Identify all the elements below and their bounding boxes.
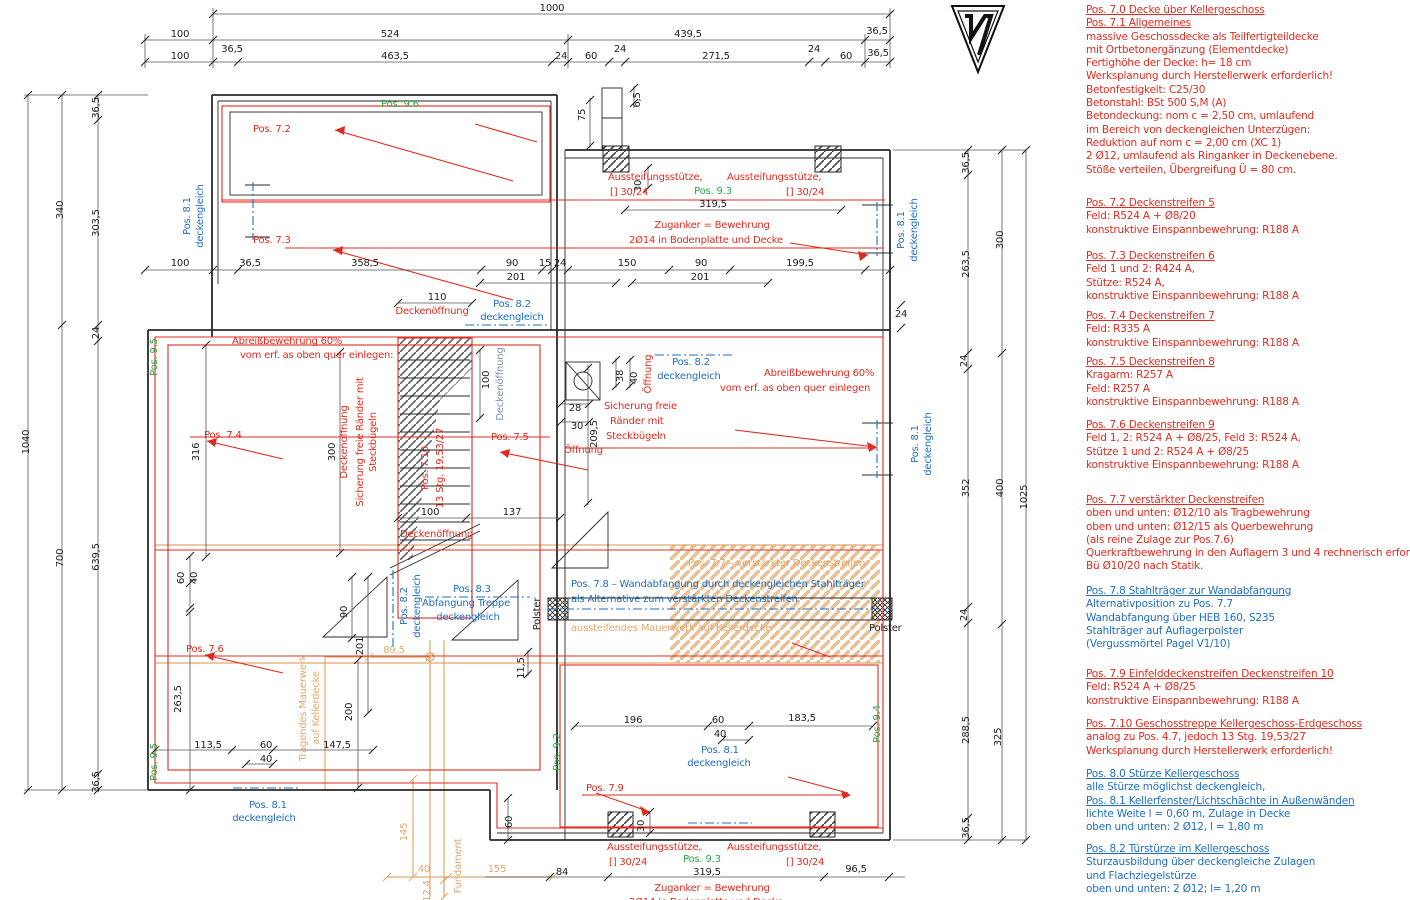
- plan-label: 24: [959, 609, 970, 621]
- plan-label: 40: [714, 729, 726, 740]
- plan-label: 1025: [1019, 485, 1030, 510]
- plan-label: 60: [260, 740, 272, 751]
- legend-line: konstruktive Einspannbewehrung: R188 A: [1086, 396, 1299, 409]
- plan-label: 89,5: [383, 645, 404, 656]
- plan-label: Pos. 7.4: [204, 430, 242, 441]
- plan-label: 24: [959, 355, 970, 367]
- plan-label: 639,5: [91, 543, 102, 571]
- legend-line: Pos. 7.5 Deckenstreifen 8: [1086, 356, 1299, 369]
- plan-label: 1000: [540, 3, 565, 14]
- plan-label: deckengleich: [687, 758, 750, 769]
- legend-line: Feld: R524 A + Ø8/20: [1086, 210, 1299, 223]
- plan-label: Pos. 9.3: [683, 854, 721, 865]
- plan-label: Sicherung freie: [604, 401, 677, 412]
- plan-label: 183,5: [788, 713, 816, 724]
- plan-label: Pos. 8.3: [453, 584, 491, 595]
- plan-label: 137: [503, 507, 522, 518]
- legend-block: Pos. 7.8 Stahlträger zur WandabfangungAl…: [1086, 585, 1291, 651]
- plan-label: Abfangung Treppe: [422, 598, 510, 609]
- plan-label: 60: [176, 572, 187, 584]
- plan-label: 11,5: [516, 657, 527, 678]
- legend-line: Feld: R335 A: [1086, 323, 1299, 336]
- legend-line: oben und unten: 2 Ø12, l = 1,80 m: [1086, 821, 1354, 834]
- plan-label: 36,5: [221, 44, 242, 55]
- legend-line: Stöße verteilen, Übergreifung Ü = 80 cm.: [1086, 164, 1338, 177]
- plan-label: 60: [840, 51, 852, 62]
- plan-label: 12,4: [422, 880, 433, 900]
- plan-label: 100: [421, 507, 440, 518]
- legend-line: Pos. 7.8 Stahlträger zur Wandabfangung: [1086, 585, 1291, 598]
- legend-line: Reduktion auf nom c = 2,00 cm (XC 1): [1086, 137, 1338, 150]
- plan-label: 36,5: [91, 97, 102, 118]
- legend-line: Stahlträger auf Auflagerpolster: [1086, 625, 1291, 638]
- legend-line: oben und unten: 2 Ø12; l= 1,20 m: [1086, 883, 1315, 896]
- legend-line: Pos. 7.3 Deckenstreifen 6: [1086, 250, 1299, 263]
- plan-label: vom erf. as oben quer einlegen: [720, 383, 870, 394]
- bracing-column: [815, 146, 841, 172]
- plan-label: 145: [399, 823, 410, 842]
- legend-line: Sturzausbildung über deckengleiche Zulag…: [1086, 856, 1315, 869]
- plan-label: 24: [554, 258, 566, 269]
- legend-line: (als reine Zulage zur Pos.7.6): [1086, 534, 1410, 547]
- plan-label: 209,5: [589, 420, 600, 448]
- plan-label: Deckenöffnung: [400, 529, 473, 540]
- plan-label: 100: [171, 29, 190, 40]
- plan-label: Fundament: [453, 838, 464, 893]
- plan-label: Zuganker = Bewehrung: [654, 220, 769, 231]
- lintel-axes-blue: [233, 182, 892, 823]
- legend-line: oben und unten: Ø12/15 als Querbewehrung: [1086, 521, 1410, 534]
- legend-block: Pos. 7.5 Deckenstreifen 8Kragarm: R257 A…: [1086, 356, 1299, 409]
- plan-label: 263,5: [173, 685, 184, 713]
- legend-line: Feld 1, 2: R524 A + Ø8/25, Feld 3: R524 …: [1086, 432, 1301, 445]
- plan-label: 358,5: [351, 258, 379, 269]
- plan-label: 263,5: [961, 250, 972, 278]
- legend-line: analog zu Pos. 4.7, jedoch 13 Stg. 19,53…: [1086, 731, 1362, 744]
- plan-label: 155: [488, 864, 507, 875]
- legend-line: Werksplanung durch Herstellerwerk erford…: [1086, 745, 1362, 758]
- plan-label: Pos. 7.5: [491, 432, 529, 443]
- plan-label: 319,5: [699, 199, 727, 210]
- plan-label: Pos. 9.2: [552, 733, 563, 771]
- plan-label: 201: [355, 637, 366, 656]
- plan-label: 196: [624, 715, 643, 726]
- plan-label: 303,5: [91, 209, 102, 237]
- plan-label: Pos. 8.1: [896, 211, 907, 249]
- plan-label: 400: [995, 479, 1006, 498]
- bracing-column: [603, 146, 629, 172]
- plan-label: 60: [585, 51, 597, 62]
- plan-label: 24: [614, 44, 626, 55]
- legend-line: konstruktive Einspannbewehrung: R188 A: [1086, 337, 1299, 350]
- plan-label: Pos. 8.2: [672, 357, 710, 368]
- plan-label: 288,5: [961, 716, 972, 744]
- plan-label: 1040: [21, 430, 32, 455]
- plan-label: 325: [993, 728, 1004, 747]
- plan-label: 352: [961, 479, 972, 498]
- plan-label: Pos. 9.4: [872, 705, 883, 743]
- plan-label: 316: [191, 443, 202, 462]
- plan-label: aussteifendes Mauerwerk auf Kellerdecke: [571, 623, 771, 634]
- plan-label: 6,5: [632, 92, 643, 107]
- plan-label: 75: [577, 109, 588, 121]
- legend-line: Pos. 7.0 Decke über Kellergeschoss: [1086, 4, 1338, 17]
- plan-label: als Alternative zum verstärkten Deckenst…: [571, 594, 798, 605]
- legend-line: oben und unten: Ø12/10 als Tragbewehrung: [1086, 507, 1410, 520]
- plan-label: 24: [895, 309, 907, 320]
- plan-label: Pos. 9.5: [149, 338, 160, 376]
- plan-label: 300: [327, 443, 338, 462]
- plan-label: 36,5: [961, 817, 972, 838]
- plan-label: 30: [636, 820, 647, 832]
- legend-line: Querkraftbewehrung in den Auflagern 3 un…: [1086, 547, 1410, 560]
- dimension-ticks: [24, 10, 1030, 900]
- legend-block: Pos. 7.6 Deckenstreifen 9Feld 1, 2: R524…: [1086, 419, 1301, 472]
- plan-label: Pos. 9.5: [149, 743, 160, 781]
- legend-line: Bü Ø10/20 nach Statik.: [1086, 560, 1410, 573]
- plan-label: 40: [260, 754, 272, 765]
- plan-label: deckengleich: [909, 198, 920, 261]
- plan-label: [] 30/24: [786, 187, 824, 198]
- plan-label: 30: [571, 421, 583, 432]
- plan-label: 24: [91, 327, 102, 339]
- legend-line: (Vergussmörtel Pagel V1/10): [1086, 638, 1291, 651]
- plan-label: Steckbügeln: [368, 412, 379, 472]
- legend-block: Pos. 8.2 Türstürze im KellergeschossStur…: [1086, 843, 1315, 896]
- plan-label: Steckbügeln: [606, 431, 666, 442]
- plan-label: Aussteifungsstütze,: [607, 842, 701, 853]
- plan-label: deckengleich: [480, 312, 543, 323]
- plan-label: Ränder mit: [610, 416, 664, 427]
- plan-label: 100: [171, 258, 190, 269]
- plan-label: 340: [55, 201, 66, 220]
- legend-line: alle Stürze möglichst deckengleich,: [1086, 781, 1354, 794]
- plan-label: Pos. 7.3: [253, 235, 291, 246]
- plan-label: Pos. 8.1: [249, 800, 287, 811]
- plan-label: 36,5: [91, 771, 102, 792]
- plan-labels: 1000100524439,536,510036,5463,5246024271…: [21, 3, 1030, 900]
- plan-label: Polster: [532, 597, 543, 631]
- plan-label: 36,5: [867, 48, 888, 59]
- legend-line: 2 Ø12, umlaufend als Ringanker in Decken…: [1086, 150, 1338, 163]
- plan-label: 100: [481, 371, 492, 390]
- plan-label: 100: [171, 51, 190, 62]
- plan-label: 200: [344, 703, 355, 722]
- legend-line: Feld 1 und 2: R424 A,: [1086, 263, 1299, 276]
- plan-label: 60: [504, 816, 515, 828]
- plan-label: deckengleich: [195, 184, 206, 247]
- legend-line: konstruktive Einspannbewehrung: R188 A: [1086, 290, 1299, 303]
- plan-label: Aussteifungsstütze,: [727, 172, 821, 183]
- plan-label: 84: [556, 867, 568, 878]
- plan-label: deckengleich: [923, 412, 934, 475]
- legend-line: Alternativposition zu Pos. 7.7: [1086, 598, 1291, 611]
- legend-block: Pos. 7.10 Geschosstreppe Kellergeschoss-…: [1086, 718, 1362, 758]
- plan-label: deckengleich: [232, 813, 295, 824]
- plan-label: 147,5: [323, 740, 351, 751]
- legend-line: Stütze 1 und 2: R524 A + Ø8/25: [1086, 446, 1301, 459]
- plan-label: 36,5: [239, 258, 260, 269]
- plan-label: 2Ø14 in Bodenplatte und Decke: [629, 234, 783, 246]
- legend-line: Stütze: R524 A,: [1086, 277, 1299, 290]
- legend-line: lichte Weite l = 0,60 m, Zulage in Decke: [1086, 808, 1354, 821]
- bracing-column: [810, 812, 835, 837]
- plan-label: Deckenöffnung: [339, 405, 350, 478]
- plan-label: 24: [808, 44, 820, 55]
- legend-line: Betonfestigkeit: C25/30: [1086, 84, 1338, 97]
- plan-label: Pos. 7.6: [186, 644, 224, 655]
- plan-label: 2Ø14 in Bodenplatte und Decke: [629, 896, 783, 900]
- plan-label: [] 30/24: [609, 857, 647, 868]
- plan-label: [] 30/24: [786, 857, 824, 868]
- plan-label: Pos. 9.3: [694, 186, 732, 197]
- legend-line: massive Geschossdecke als Teilfertigteil…: [1086, 31, 1338, 44]
- plan-label: 201: [507, 272, 526, 283]
- plan-label: 700: [55, 549, 66, 568]
- legend-block: Pos. 7.2 Deckenstreifen 5Feld: R524 A + …: [1086, 197, 1299, 237]
- plan-label: 271,5: [702, 51, 730, 62]
- slab-edges-red: [155, 106, 885, 828]
- plan-label: Deckenöffnung: [395, 306, 468, 317]
- legend-line: konstruktive Einspannbewehrung: R188 A: [1086, 459, 1301, 472]
- plan-label: Aussteifungsstütze,: [608, 172, 702, 183]
- legend-line: Wandabfangung über HEB 160, S235: [1086, 612, 1291, 625]
- plan-label: [] 30/24: [610, 187, 648, 198]
- walls: [148, 88, 893, 840]
- plan-label: 201: [691, 272, 710, 283]
- legend-line: Pos. 7.4 Deckenstreifen 7: [1086, 310, 1299, 323]
- plan-label: Pos. 7.9: [586, 783, 624, 794]
- plan-label: 524: [381, 29, 400, 40]
- plan-label: 40: [189, 572, 200, 584]
- plan-label: 463,5: [381, 51, 409, 62]
- company-logo: [952, 6, 1004, 72]
- plan-label: Tragendes Mauerwerk: [298, 654, 309, 762]
- plan-label: 300: [995, 231, 1006, 250]
- legend-line: Betonstahl: BSt 500 S,M (A): [1086, 97, 1338, 110]
- legend-line: Fertighöhe der Decke: h= 18 cm: [1086, 57, 1338, 70]
- plan-label: 24: [555, 51, 567, 62]
- plan-label: 96,5: [845, 864, 866, 875]
- plan-label: 38: [615, 370, 626, 382]
- plan-label: Zuganker = Bewehrung: [654, 883, 769, 894]
- legend-block: Pos. 7.9 Einfelddeckenstreifen Deckenstr…: [1086, 668, 1334, 708]
- legend-line: Kragarm: R257 A: [1086, 369, 1299, 382]
- legend-line: Feld: R524 A + Ø8/25: [1086, 681, 1334, 694]
- legend-line: konstruktive Einspannbewehrung: R188 A: [1086, 695, 1334, 708]
- plan-label: 90: [506, 258, 518, 269]
- support-triangle: [552, 512, 608, 568]
- plan-label: Sicherung freie Ränder mit: [355, 377, 366, 507]
- plan-label: vom erf. as oben quer einlegen:: [240, 350, 393, 361]
- plan-label: 60: [712, 715, 724, 726]
- plan-label: Pos. 7.10: [420, 446, 431, 490]
- legend: Pos. 7.0 Decke über KellergeschossPos. 7…: [1086, 0, 1410, 900]
- legend-block: Pos. 7.4 Deckenstreifen 7Feld: R335 Akon…: [1086, 310, 1299, 350]
- plan-label: Öffnung: [641, 355, 654, 394]
- legend-line: Pos. 7.2 Deckenstreifen 5: [1086, 197, 1299, 210]
- plan-label: 40: [629, 372, 640, 384]
- legend-line: Pos. 8.1 Kellerfenster/Lichtschächte in …: [1086, 795, 1354, 808]
- plan-label: Pos. 8.1: [701, 745, 739, 756]
- plan-label: Deckenöffnung: [495, 347, 506, 420]
- plan-label: 150: [618, 258, 637, 269]
- plan-label: 90: [695, 258, 707, 269]
- plan-label: 36,5: [961, 152, 972, 173]
- plan-label: 110: [428, 292, 447, 303]
- bracing-column: [608, 812, 633, 837]
- legend-line: Feld: R257 A: [1086, 383, 1299, 396]
- plan-label: Pos. 8.2: [399, 587, 410, 625]
- plan-label: Pos. 7.8 – Wandabfangung durch deckengle…: [571, 579, 866, 590]
- plan-label: 36,5: [866, 26, 887, 37]
- legend-line: Pos. 7.6 Deckenstreifen 9: [1086, 419, 1301, 432]
- plan-label: auf Kellerdecke: [311, 671, 322, 745]
- legend-line: Betondeckung: nom c = 2,50 cm, umlaufend: [1086, 110, 1338, 123]
- plan-label: deckengleich: [436, 612, 499, 623]
- legend-line: Werksplanung durch Herstellerwerk erford…: [1086, 70, 1338, 83]
- legend-line: Pos. 8.2 Türstürze im Kellergeschoss: [1086, 843, 1315, 856]
- legend-line: Pos. 8.0 Stürze Kellergeschoss: [1086, 768, 1354, 781]
- plan-label: Pos. 7.7 – verstärkter Deckenstreifen: [688, 558, 865, 569]
- plan-label: 15: [539, 258, 551, 269]
- plan-label: deckengleich: [657, 371, 720, 382]
- dim-tick: [897, 324, 905, 332]
- plan-label: Abreißbewehrung 60%: [232, 336, 342, 347]
- legend-block: Pos. 7.3 Deckenstreifen 6Feld 1 und 2: R…: [1086, 250, 1299, 303]
- legend-line: im Bereich von deckengleichen Unterzügen…: [1086, 124, 1338, 137]
- plan-label: 13 Stg. 19,53/27: [435, 428, 446, 508]
- plan-label: Pos. 9.6: [381, 99, 419, 110]
- legend-block: Pos. 8.0 Stürze Kellergeschossalle Stürz…: [1086, 768, 1354, 834]
- plan-label: Pos. 8.1: [910, 425, 921, 463]
- plan-label: Pos. 8.1: [182, 197, 193, 235]
- drawing-sheet: 1000100524439,536,510036,5463,5246024271…: [0, 0, 1410, 900]
- plan-label: Pos. 7.2: [253, 124, 291, 135]
- plan-label: 90: [339, 606, 350, 618]
- plan-label: 319,5: [693, 867, 721, 878]
- plan-label: 439,5: [674, 29, 702, 40]
- plan-label: Pos. 8.2: [493, 299, 531, 310]
- plan-label: Aussteifungsstütze,: [727, 842, 821, 853]
- legend-line: Pos. 7.1 Allgemeines: [1086, 17, 1338, 30]
- support-triangle: [323, 577, 387, 637]
- legend-line: und Flachziegelstürze: [1086, 870, 1315, 883]
- plan-label: 40: [418, 864, 430, 875]
- legend-line: Pos. 7.7 verstärkter Deckenstreifen: [1086, 494, 1410, 507]
- legend-line: mit Ortbetonergänzung (Elementdecke): [1086, 44, 1338, 57]
- legend-block: Pos. 7.0 Decke über KellergeschossPos. 7…: [1086, 4, 1338, 177]
- legend-line: Pos. 7.9 Einfelddeckenstreifen Deckenstr…: [1086, 668, 1334, 681]
- legend-block: Pos. 7.7 verstärkter Deckenstreifenoben …: [1086, 494, 1410, 574]
- plan-label: 199,5: [786, 258, 814, 269]
- legend-line: konstruktive Einspannbewehrung: R188 A: [1086, 224, 1299, 237]
- legend-line: Pos. 7.10 Geschosstreppe Kellergeschoss-…: [1086, 718, 1362, 731]
- dim-tick: [897, 301, 905, 309]
- plan-label: Abreißbewehrung 60%: [764, 368, 874, 379]
- plan-label: 28: [569, 403, 581, 414]
- plan-label: Polster: [869, 623, 903, 634]
- plan-label: 113,5: [194, 740, 222, 751]
